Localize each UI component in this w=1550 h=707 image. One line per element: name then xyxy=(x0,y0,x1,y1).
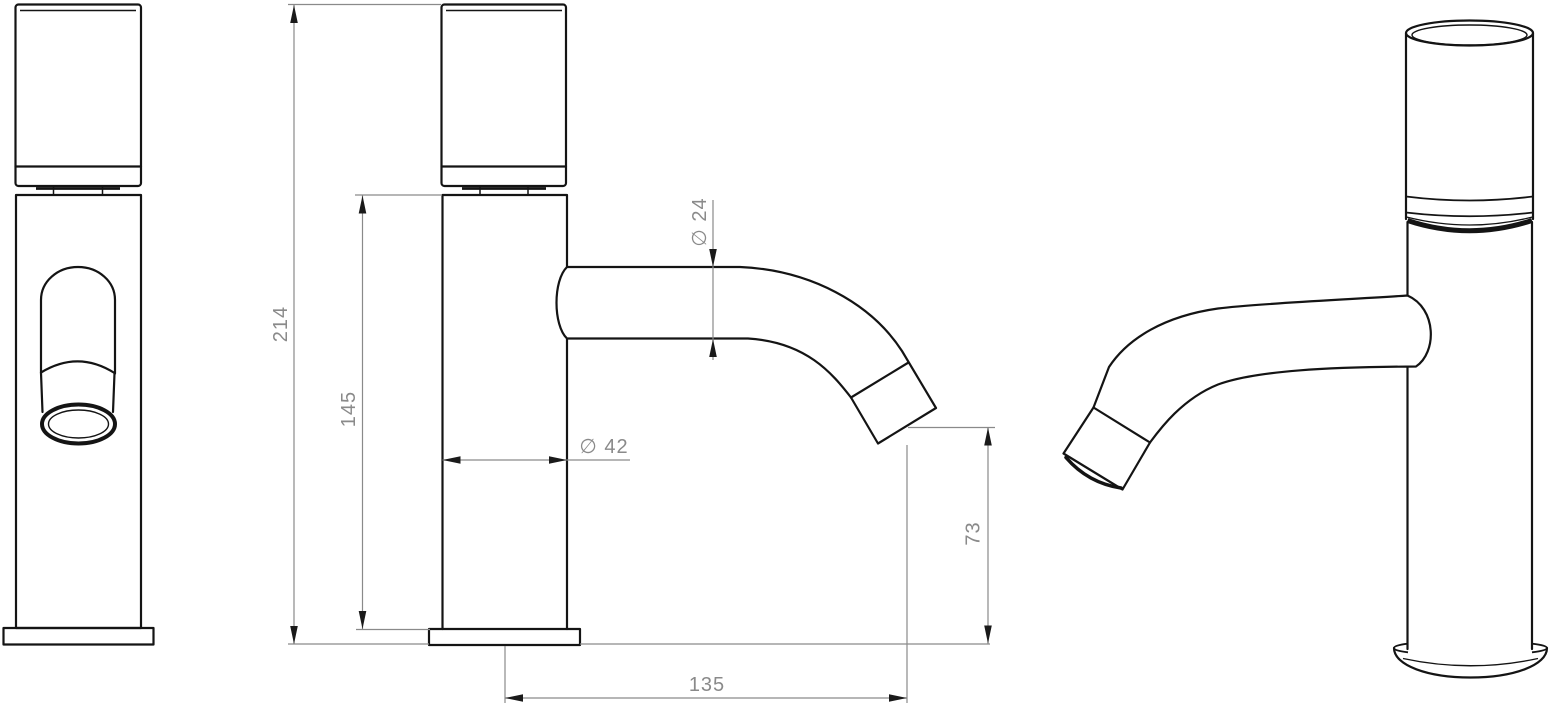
front-outlet-inner-ring xyxy=(49,410,109,438)
dimension-total-height: 214 xyxy=(270,5,298,644)
arrowhead-145-top xyxy=(359,196,367,214)
front-handle xyxy=(16,5,142,187)
dim-label-total-height: 214 xyxy=(270,306,292,342)
persp-handle-sides xyxy=(1406,33,1533,219)
arrowhead-135-left xyxy=(505,694,523,702)
arrowhead-145-bottom xyxy=(359,611,367,629)
arrowhead-42-left xyxy=(443,456,461,464)
arrowhead-73-top xyxy=(984,428,992,446)
arrowhead-73-bottom xyxy=(984,626,992,644)
persp-base-top-right-arc xyxy=(1532,644,1547,653)
arrowhead-24-top xyxy=(709,249,717,267)
persp-body xyxy=(1408,222,1533,649)
dim-label-outlet-clearance: 73 xyxy=(963,521,985,545)
dim-label-body-diameter: ∅ 42 xyxy=(579,436,628,458)
arrowhead-135-right xyxy=(889,694,907,702)
dimension-outlet-clearance: 73 xyxy=(963,428,992,644)
drawing-canvas: 214 145 ∅ 24 ∅ 42 73 xyxy=(0,0,1550,707)
side-spout xyxy=(557,267,937,444)
arrowhead-214-bottom xyxy=(290,626,298,644)
front-body xyxy=(16,195,141,628)
perspective-view xyxy=(1064,21,1548,678)
persp-band-upper-arc xyxy=(1406,197,1533,201)
front-view xyxy=(4,5,154,645)
dimension-spout-reach: 135 xyxy=(505,674,907,702)
dimension-spout-height: 145 xyxy=(338,196,366,630)
dim-label-spout-diameter: ∅ 24 xyxy=(689,197,711,246)
front-spout-arch xyxy=(41,267,115,374)
dimension-body-diameter: ∅ 42 xyxy=(443,436,631,464)
arrowhead-24-bottom xyxy=(709,339,717,357)
faucet-technical-drawing: 214 145 ∅ 24 ∅ 42 73 xyxy=(0,0,1550,707)
side-handle xyxy=(442,5,567,187)
side-base xyxy=(429,629,580,645)
dim-label-spout-reach: 135 xyxy=(689,674,725,696)
arrowhead-42-right xyxy=(549,456,567,464)
dim-label-spout-height: 145 xyxy=(338,391,360,427)
persp-handle-top-chamfer xyxy=(1412,25,1527,45)
front-base xyxy=(4,628,154,645)
persp-base-bottom xyxy=(1394,648,1547,678)
persp-base-inner-arc xyxy=(1403,659,1538,666)
persp-spout xyxy=(1064,296,1431,490)
side-body xyxy=(443,195,568,629)
side-view xyxy=(429,5,936,646)
front-spout-joint-arc xyxy=(41,361,115,373)
arrowhead-214-top xyxy=(290,5,298,23)
persp-base-top-left-arc xyxy=(1394,644,1408,653)
persp-band-lower-arc xyxy=(1406,213,1533,217)
